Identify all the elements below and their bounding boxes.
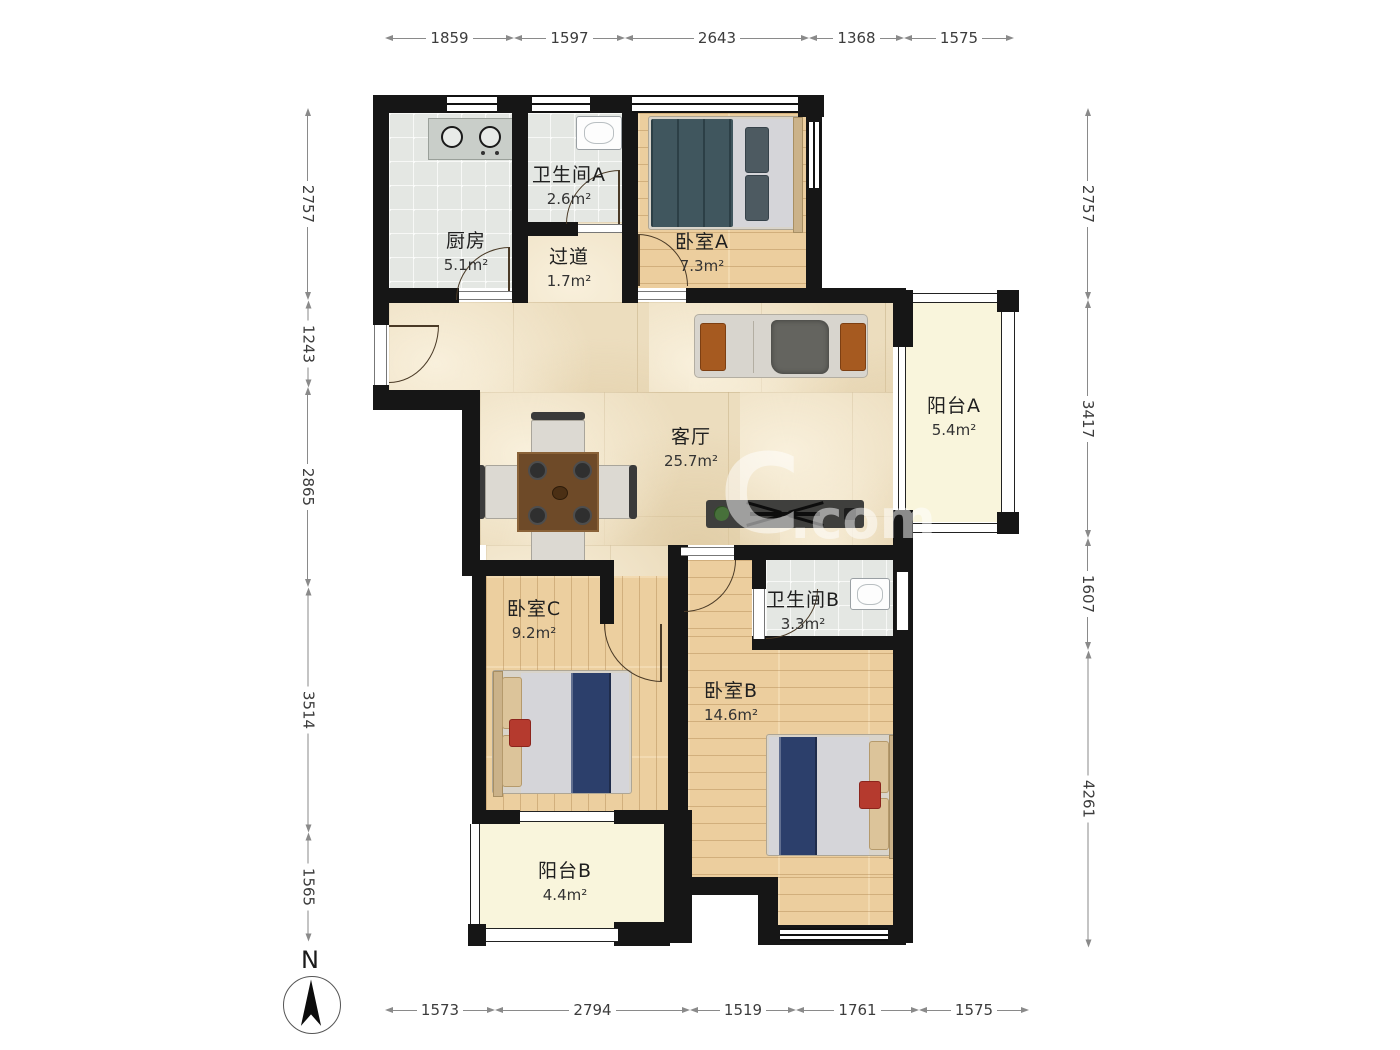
dimension-line — [912, 38, 936, 39]
dimension-segment-left: 1565 — [299, 832, 317, 941]
room-name: 过道 — [547, 242, 591, 269]
dimension-label: 1607 — [1079, 571, 1097, 617]
bath-b-window — [896, 572, 909, 630]
dimension-line — [1088, 822, 1089, 939]
dimension-label: 1597 — [546, 29, 592, 47]
balcony-b-window — [486, 928, 618, 942]
tv-leg-icon — [746, 514, 781, 527]
dimension-arrow-icon — [487, 1007, 495, 1013]
dimension-arrow-icon — [1085, 108, 1091, 116]
dimension-label: 1565 — [299, 863, 317, 909]
room-label-bedroom-c: 卧室C 9.2m² — [507, 594, 561, 642]
dimension-line — [817, 38, 833, 39]
dimension-arrow-icon — [896, 35, 904, 41]
dimension-arrow-icon — [796, 1007, 804, 1013]
dimension-segment-top: 1859 — [385, 29, 514, 47]
bath-b-door-opening — [753, 589, 765, 639]
dimension-line — [1088, 308, 1089, 396]
room-label-balcony-b: 阳台B 4.4m² — [538, 856, 592, 904]
room-area: 1.7m² — [547, 272, 591, 290]
dimension-segment-bottom: 1573 — [385, 1001, 495, 1019]
room-label-bedroom-b: 卧室B 14.6m² — [704, 676, 758, 724]
dimension-line — [698, 1010, 720, 1011]
dimension-arrow-icon — [385, 35, 393, 41]
room-name: 卫生间A — [532, 160, 606, 187]
room-area: 5.1m² — [444, 256, 488, 274]
dimension-arrow-icon — [1085, 939, 1091, 947]
bowl-icon — [552, 486, 568, 500]
dimension-segment-right: 1607 — [1079, 538, 1097, 650]
wall — [389, 288, 459, 303]
wall — [373, 390, 480, 410]
dimension-arrow-icon — [305, 587, 311, 595]
wall — [614, 810, 668, 824]
bedroom-c-door-leaf — [660, 624, 662, 682]
dimension-label: 1859 — [426, 29, 472, 47]
room-label-kitchen: 厨房 5.1m² — [444, 226, 488, 274]
dimension-arrow-icon — [1006, 35, 1014, 41]
dimension-segment-left: 3514 — [299, 587, 317, 832]
bed-a-duvet — [651, 119, 733, 227]
dimension-arrow-icon — [1085, 530, 1091, 538]
wall — [468, 924, 486, 946]
dimension-line — [1088, 617, 1089, 642]
bed-c — [492, 670, 632, 794]
room-label-bedroom-a: 卧室A 7.3m² — [675, 227, 729, 275]
wall — [590, 95, 632, 113]
dimension-line — [927, 1010, 951, 1011]
dimension-arrow-icon — [305, 933, 311, 941]
wall — [997, 512, 1019, 534]
room-label-bath-a: 卫生间A 2.6m² — [532, 160, 606, 208]
dimension-arrow-icon — [617, 35, 625, 41]
room-area: 7.3m² — [675, 257, 729, 275]
dimension-arrow-icon — [1085, 642, 1091, 650]
wall — [806, 288, 906, 303]
dimension-segment-bottom: 1575 — [919, 1001, 1029, 1019]
bedroom-a-door-opening — [638, 291, 686, 300]
sofa-pillow — [840, 323, 866, 371]
dimension-line — [308, 395, 309, 464]
dimension-arrow-icon — [809, 35, 817, 41]
room-area: 3.3m² — [766, 615, 840, 633]
tv-leg-icon — [788, 514, 823, 527]
dimension-line — [1088, 546, 1089, 571]
bedroom-b-window — [780, 928, 888, 941]
dimension-segment-left: 1243 — [299, 300, 317, 387]
dimension-label: 3417 — [1079, 396, 1097, 442]
plant-icon — [714, 506, 729, 521]
dimension-line — [522, 38, 546, 39]
wall — [686, 288, 822, 303]
dimension-arrow-icon — [690, 1007, 698, 1013]
dimension-arrow-icon — [919, 1007, 927, 1013]
wall — [526, 222, 578, 236]
dimension-arrow-icon — [305, 292, 311, 300]
sofa — [694, 314, 868, 378]
plate-icon — [573, 461, 592, 480]
dimension-label: 1368 — [833, 29, 879, 47]
balcony-a-window — [913, 523, 997, 533]
dining-chair — [597, 465, 631, 519]
dimension-line — [997, 1010, 1021, 1011]
bed-b — [766, 734, 896, 856]
dimension-label: 2643 — [694, 29, 740, 47]
wall — [472, 574, 486, 814]
sofa-seam — [753, 321, 754, 373]
dimension-line — [393, 38, 426, 39]
window — [632, 95, 798, 113]
dining-table — [517, 452, 599, 532]
dimension-arrow-icon — [788, 1007, 796, 1013]
dimension-line — [503, 1010, 569, 1011]
dimension-line — [1088, 227, 1089, 292]
dimension-arrow-icon — [305, 832, 311, 840]
room-label-bath-b: 卫生间B 3.3m² — [766, 585, 840, 633]
sink-basin-icon — [857, 584, 884, 605]
wall — [462, 408, 480, 576]
dimension-arrow-icon — [506, 35, 514, 41]
room-name: 厨房 — [444, 226, 488, 253]
dimension-line — [308, 510, 309, 579]
dimension-label: 1573 — [417, 1001, 463, 1019]
dimension-arrow-icon — [305, 379, 311, 387]
wall — [893, 290, 913, 347]
dimension-line — [616, 1010, 682, 1011]
balcony-a-window — [1001, 312, 1015, 512]
dimension-line — [308, 116, 309, 181]
dimension-label: 4261 — [1079, 775, 1097, 821]
dimension-segment-top: 1368 — [809, 29, 904, 47]
room-area: 25.7m² — [664, 452, 718, 470]
balcony-a-sliding-window — [898, 347, 906, 510]
dimension-label: 3514 — [299, 686, 317, 732]
dimension-label: 1519 — [720, 1001, 766, 1019]
compass-north-label: N — [301, 946, 319, 974]
dimension-line — [1088, 658, 1089, 775]
dimension-segment-right: 4261 — [1079, 650, 1097, 947]
entry-door-opening — [374, 325, 387, 385]
entry-door-leaf — [389, 325, 439, 327]
room-area: 9.2m² — [507, 624, 561, 642]
dining-chair — [531, 530, 585, 564]
dimension-segment-top: 1575 — [904, 29, 1014, 47]
dimension-arrow-icon — [305, 579, 311, 587]
dimension-arrow-icon — [1085, 300, 1091, 308]
stove — [428, 118, 520, 160]
dimension-line — [393, 1010, 417, 1011]
dimension-label: 2757 — [299, 181, 317, 227]
window — [532, 95, 590, 113]
dimension-segment-top: 1597 — [514, 29, 625, 47]
wall — [688, 877, 762, 895]
dimension-line — [463, 1010, 487, 1011]
dimension-arrow-icon — [514, 35, 522, 41]
room-area: 4.4m² — [538, 886, 592, 904]
room-name: 卧室B — [704, 676, 758, 703]
wall — [373, 95, 447, 113]
room-area: 2.6m² — [532, 190, 606, 208]
dimension-line — [881, 1010, 911, 1011]
dimension-line — [1088, 116, 1089, 181]
stove-burner-icon — [479, 126, 501, 148]
stove-knob-icon — [481, 151, 485, 155]
dining-chair-back — [531, 412, 585, 420]
stove-burner-icon — [441, 126, 463, 148]
tv-stand — [706, 500, 864, 528]
room-label-balcony-a: 阳台A 5.4m² — [927, 391, 981, 439]
wall — [373, 113, 389, 325]
dimension-arrow-icon — [1085, 538, 1091, 546]
dimension-line — [982, 38, 1006, 39]
bed-c-red-pillow — [509, 719, 531, 747]
tv-icon — [750, 512, 820, 516]
bed-b-runner — [779, 737, 817, 855]
sofa-blanket — [771, 320, 829, 374]
dimension-line — [633, 38, 694, 39]
dimension-label: 2794 — [569, 1001, 615, 1019]
dimension-arrow-icon — [904, 35, 912, 41]
dimension-line — [473, 38, 506, 39]
bedroom-a-door-leaf — [638, 234, 640, 286]
bed-b-red-pillow — [859, 781, 881, 809]
balcony-b-window — [470, 824, 480, 924]
wall — [462, 560, 614, 576]
bedroom-b-floor-lower — [778, 877, 893, 925]
floor-plan: 厨房 5.1m² 卫生间A 2.6m² 过道 1.7m² 卧室A 7.3m² 客… — [0, 0, 1400, 1050]
room-area: 5.4m² — [927, 421, 981, 439]
plate-icon — [528, 506, 547, 525]
dimension-label: 2865 — [299, 464, 317, 510]
wall — [997, 290, 1019, 312]
dimension-line — [308, 733, 309, 824]
window — [447, 95, 497, 113]
bath-a-sink — [576, 116, 622, 150]
dining-chair — [531, 420, 585, 454]
dimension-line — [308, 910, 309, 933]
bath-b-sink — [850, 578, 890, 610]
bedroom-b-door-opening — [681, 547, 734, 556]
room-name: 卧室C — [507, 594, 561, 621]
bed-a-pillow — [745, 127, 769, 173]
room-label-hallway: 过道 1.7m² — [547, 242, 591, 290]
wall — [622, 113, 638, 303]
dimension-label: 2757 — [1079, 181, 1097, 227]
room-name: 阳台B — [538, 856, 592, 883]
wall — [614, 922, 670, 946]
dimension-arrow-icon — [1085, 292, 1091, 300]
dimension-segment-bottom: 1761 — [796, 1001, 919, 1019]
sofa-pillow — [700, 323, 726, 371]
bedroom-c-balcony-window — [520, 811, 614, 822]
dimension-segment-bottom: 1519 — [690, 1001, 796, 1019]
dimension-arrow-icon — [305, 824, 311, 832]
dining-chair — [485, 465, 519, 519]
room-label-living: 客厅 25.7m² — [664, 422, 718, 470]
room-name: 阳台A — [927, 391, 981, 418]
dimension-arrow-icon — [1021, 1007, 1029, 1013]
wall — [893, 510, 913, 548]
room-name: 卧室A — [675, 227, 729, 254]
balcony-a-window — [913, 293, 997, 303]
window — [807, 122, 821, 188]
plate-icon — [528, 461, 547, 480]
dimension-label: 1761 — [834, 1001, 880, 1019]
bath-a-door-leaf — [618, 170, 620, 224]
dimension-line — [804, 1010, 834, 1011]
dimension-arrow-icon — [911, 1007, 919, 1013]
dimension-arrow-icon — [495, 1007, 503, 1013]
dimension-arrow-icon — [385, 1007, 393, 1013]
dining-chair-back — [629, 465, 637, 519]
dimension-arrow-icon — [305, 108, 311, 116]
wall — [512, 113, 528, 303]
room-name: 客厅 — [664, 422, 718, 449]
dimension-segment-right: 2757 — [1079, 108, 1097, 300]
wall — [497, 95, 532, 113]
wall — [798, 95, 824, 117]
bath-a-door-opening — [578, 224, 622, 233]
sink-basin-icon — [584, 122, 615, 144]
dimension-label: 1575 — [951, 1001, 997, 1019]
wall — [600, 576, 614, 624]
dimension-line — [308, 227, 309, 292]
dimension-line — [308, 308, 309, 320]
dimension-line — [766, 1010, 788, 1011]
dimension-line — [740, 38, 801, 39]
dimension-arrow-icon — [305, 300, 311, 308]
dimension-line — [308, 840, 309, 863]
dimension-line — [1088, 442, 1089, 530]
bed-a — [648, 116, 800, 230]
dimension-segment-left: 2757 — [299, 108, 317, 300]
bed-a-pillow — [745, 175, 769, 221]
dimension-arrow-icon — [801, 35, 809, 41]
dimension-segment-left: 2865 — [299, 387, 317, 587]
dimension-label: 1575 — [936, 29, 982, 47]
bed-c-runner — [571, 673, 611, 793]
dimension-segment-right: 3417 — [1079, 300, 1097, 538]
dimension-line — [308, 595, 309, 686]
speaker-icon — [844, 508, 856, 520]
stove-knob-icon — [495, 151, 499, 155]
dimension-arrow-icon — [305, 387, 311, 395]
room-area: 14.6m² — [704, 706, 758, 724]
dimension-line — [593, 38, 617, 39]
bed-a-headboard — [793, 117, 803, 233]
wall — [752, 557, 766, 589]
room-name: 卫生间B — [766, 585, 840, 612]
dimension-arrow-icon — [1085, 650, 1091, 658]
dimension-segment-bottom: 2794 — [495, 1001, 690, 1019]
dimension-label: 1243 — [299, 320, 317, 366]
dimension-line — [880, 38, 896, 39]
dimension-line — [308, 367, 309, 379]
dimension-segment-top: 2643 — [625, 29, 809, 47]
dimension-arrow-icon — [625, 35, 633, 41]
kitchen-door-opening — [459, 291, 512, 300]
plate-icon — [573, 506, 592, 525]
dimension-arrow-icon — [682, 1007, 690, 1013]
